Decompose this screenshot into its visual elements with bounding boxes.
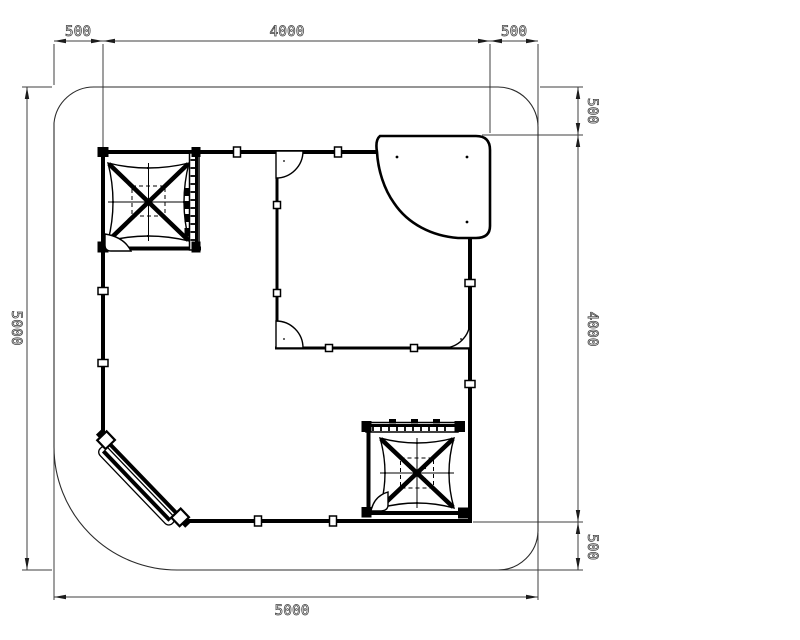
dim-label-left: 5000	[8, 311, 24, 346]
dim-label-top-right: 500	[501, 24, 527, 40]
corner-pad-bottom-left	[276, 321, 303, 348]
dim-extension-lines	[22, 44, 583, 600]
corner-cushion	[105, 234, 131, 251]
trampoline-bottom-right	[362, 419, 469, 519]
cad-plan-view: 500 4000 500 500 4000 500 5000 5000	[0, 0, 800, 640]
dim-label-bottom: 5000	[275, 603, 310, 619]
cad-drawing: 500 4000 500 500 4000 500 5000 5000	[0, 0, 800, 640]
dim-label-right-bottom: 500	[584, 534, 600, 560]
bolt-hole	[396, 156, 399, 159]
corner-platform	[376, 136, 490, 238]
diagonal-beam	[88, 428, 193, 536]
dim-arrows	[25, 39, 580, 599]
corner-cushion	[371, 492, 388, 511]
corner-pad-bottom-right	[443, 321, 470, 348]
structure-frame	[88, 136, 490, 536]
trampoline-top-left	[98, 147, 202, 253]
dim-label-right-top: 500	[584, 98, 600, 124]
corner-pad-top-left	[276, 151, 303, 178]
beam-core	[103, 451, 169, 520]
bolt-hole	[466, 221, 469, 224]
dim-label-top-left: 500	[65, 24, 91, 40]
trampoline-rail	[366, 419, 458, 432]
dim-label-right-middle: 4000	[584, 312, 600, 347]
bolt-hole	[466, 156, 469, 159]
dimension-layer: 500 4000 500 500 4000 500 5000 5000	[8, 24, 600, 619]
dim-label-top-center: 4000	[270, 24, 305, 40]
